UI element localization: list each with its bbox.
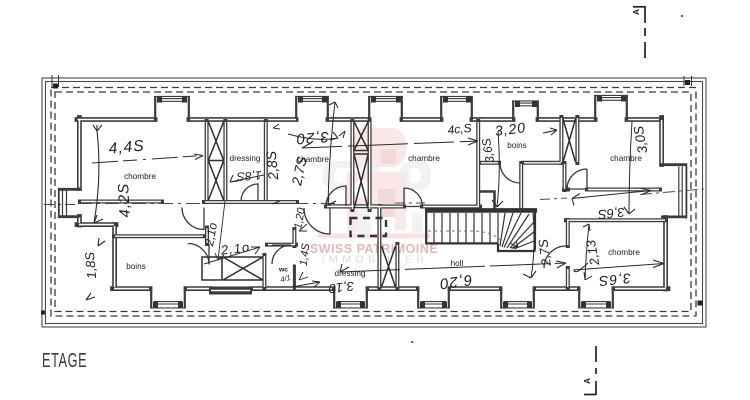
- svg-text:1,4S: 1,4S: [298, 242, 313, 267]
- svg-text:A: A: [582, 378, 592, 384]
- svg-text:IMMOBILIER: IMMOBILIER: [322, 254, 429, 266]
- svg-text:holl: holl: [451, 259, 464, 268]
- svg-text:dressing: dressing: [230, 154, 261, 163]
- svg-text:dressing: dressing: [335, 269, 366, 278]
- svg-text:6,20: 6,20: [438, 271, 473, 292]
- svg-text:chambre: chambre: [408, 154, 440, 163]
- svg-text:4,4S: 4,4S: [108, 137, 145, 157]
- svg-text:3,6S: 3,6S: [597, 205, 625, 223]
- svg-text:3,20: 3,20: [494, 119, 527, 139]
- svg-text:1,20: 1,20: [292, 206, 308, 230]
- svg-text:4/1: 4/1: [279, 273, 291, 284]
- svg-text:2,7S: 2,7S: [288, 155, 310, 188]
- svg-text:3,10: 3,10: [327, 279, 354, 297]
- svg-text:chombre: chombre: [124, 172, 156, 181]
- svg-text:A: A: [631, 9, 641, 15]
- svg-text:3,6S: 3,6S: [597, 270, 631, 289]
- svg-text:3,6S: 3,6S: [479, 137, 497, 164]
- svg-text:2,1o: 2,1o: [202, 221, 220, 248]
- svg-text:wc: wc: [278, 267, 288, 274]
- svg-text:chombre: chombre: [608, 248, 640, 257]
- svg-text:4c,S: 4c,S: [447, 121, 472, 137]
- svg-text:boins: boins: [126, 262, 146, 271]
- svg-text:1,8S: 1,8S: [82, 251, 99, 279]
- svg-text:3,0S: 3,0S: [631, 125, 651, 155]
- svg-text:ETAGE: ETAGE: [42, 349, 87, 372]
- svg-text:2,8S: 2,8S: [263, 150, 282, 182]
- svg-text:boins: boins: [507, 141, 527, 150]
- svg-text:4,2S: 4,2S: [115, 182, 134, 218]
